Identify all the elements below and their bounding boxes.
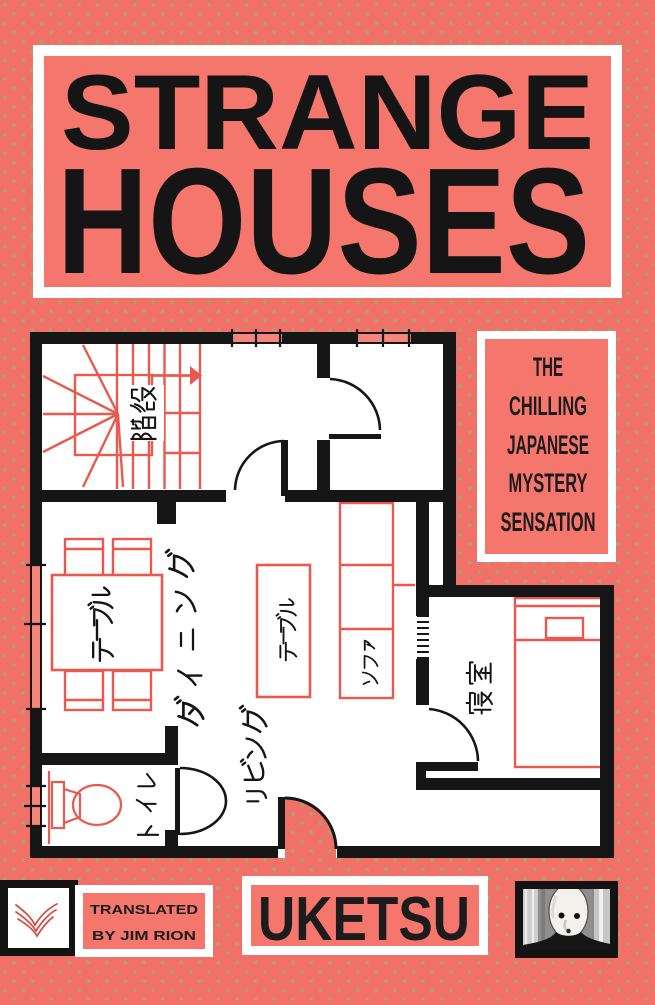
svg-text:CHILLING: CHILLING: [509, 391, 587, 421]
svg-text:HOUSES: HOUSES: [57, 136, 590, 305]
svg-text:THE: THE: [533, 352, 563, 382]
svg-text:JAPANESE: JAPANESE: [507, 430, 589, 460]
svg-text:SENSATION: SENSATION: [501, 507, 596, 537]
svg-text:UKETSU: UKETSU: [258, 885, 470, 954]
svg-text:TRANSLATED: TRANSLATED: [90, 902, 198, 917]
svg-text:BY JIM RION: BY JIM RION: [92, 928, 196, 943]
svg-text:MYSTERY: MYSTERY: [509, 468, 588, 498]
